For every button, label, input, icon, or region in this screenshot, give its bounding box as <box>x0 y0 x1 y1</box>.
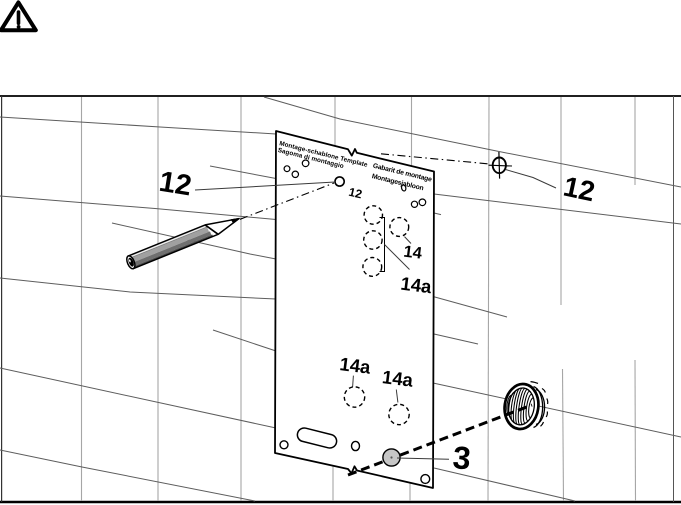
svg-text:12: 12 <box>561 171 598 208</box>
svg-text:12: 12 <box>157 166 194 203</box>
svg-text:14: 14 <box>403 243 424 263</box>
svg-text:14a: 14a <box>400 273 434 298</box>
svg-text:3: 3 <box>451 439 472 476</box>
svg-text:14a: 14a <box>381 366 415 391</box>
svg-text:14a: 14a <box>339 353 373 378</box>
